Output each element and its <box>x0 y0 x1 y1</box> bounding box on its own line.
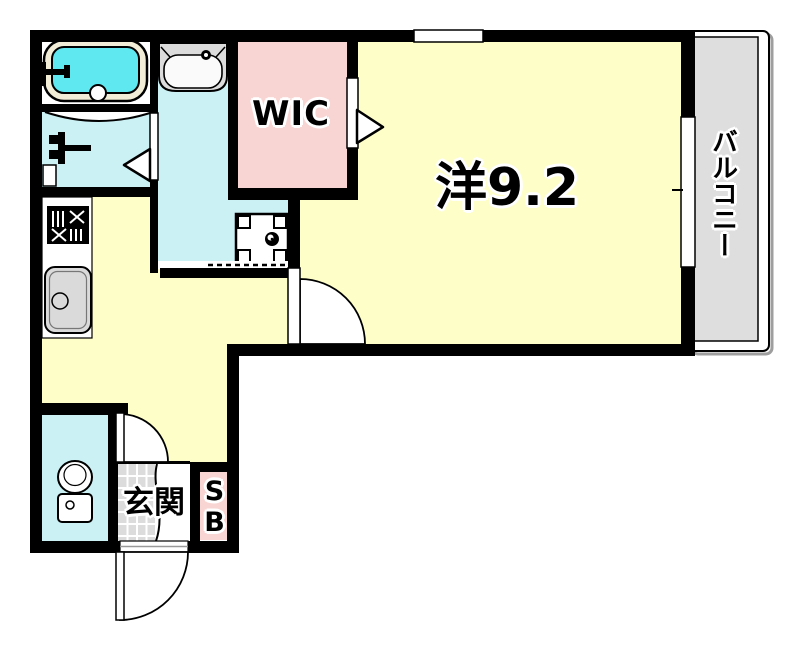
balcony-window <box>681 117 695 267</box>
vanity-faucet-dot <box>204 53 208 57</box>
toilet-bowl <box>58 461 92 493</box>
pan-corner <box>274 250 286 262</box>
wall-wic-right-upper <box>347 42 358 78</box>
faucet-pipe-v <box>58 132 65 164</box>
wall-strip-wic-divider <box>228 42 238 188</box>
shoe-box-label: SB <box>201 476 228 538</box>
wall-mainroom-left <box>288 200 300 268</box>
entry-door <box>116 541 188 620</box>
tub-faucet-handle <box>64 65 70 78</box>
balcony-label: バルコニー <box>708 120 738 265</box>
gas-stove <box>47 206 89 244</box>
vanity-bowl <box>164 55 222 88</box>
wall-bath-bottom <box>30 104 158 112</box>
top-window <box>414 30 483 42</box>
wall-top-right <box>483 30 695 42</box>
lintel-bar <box>160 268 300 278</box>
wall-right-lower <box>681 267 695 356</box>
sink-drain <box>52 293 68 309</box>
tub-drain <box>90 85 106 101</box>
wall-wic-right-lower <box>347 148 358 188</box>
wall-bottom-a <box>30 541 120 553</box>
wic-label: WIC <box>241 96 341 132</box>
main-room-label: 洋9.2 <box>377 159 637 217</box>
floor-plan-drawing <box>0 0 800 648</box>
wall-top-left <box>30 30 414 42</box>
washing-machine-pan <box>236 214 288 264</box>
faucet-handle-top <box>49 135 58 144</box>
pan-corner <box>238 250 250 262</box>
entrance-label: 玄関 <box>104 486 204 520</box>
faucet-handle-bottom <box>49 150 58 159</box>
entry-door-arc <box>120 552 188 620</box>
wall-sb-outer <box>227 344 239 553</box>
floor-plan-canvas: WIC 洋9.2 バルコニー 玄関 SB <box>0 0 800 648</box>
toilet-tank <box>58 494 92 522</box>
wall-niche <box>43 165 56 186</box>
wall-mainroom-bottom <box>227 344 695 356</box>
kitchen-sink <box>45 267 91 333</box>
toilet-flush-button <box>66 501 74 509</box>
entry-door-leaf <box>116 552 124 620</box>
pan-drain-dot <box>271 238 274 241</box>
wall-right-upper <box>681 30 695 117</box>
wall-washroom-bottom <box>30 187 158 197</box>
genkan-door-leaf <box>116 413 124 462</box>
pan-corner <box>274 216 286 228</box>
faucet-pipe-h <box>65 145 91 151</box>
vanity-basin <box>159 43 227 91</box>
wall-wic-bottom <box>228 188 358 200</box>
bathtub <box>38 40 147 101</box>
main-room-door-leaf <box>288 268 300 344</box>
pan-corner <box>238 216 250 228</box>
